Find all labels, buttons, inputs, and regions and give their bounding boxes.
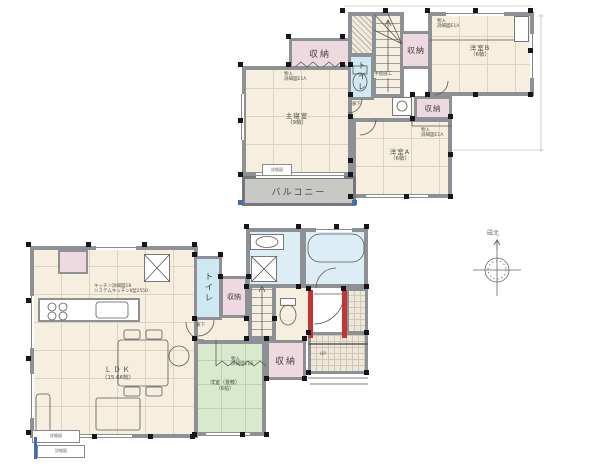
closet-label: 収納 — [309, 47, 331, 60]
refrigerator-space — [144, 254, 170, 282]
hallway-1f-label: 廊下 — [196, 323, 205, 329]
hallway-2f-label: 廊下 — [352, 102, 361, 108]
column-mark — [192, 252, 197, 257]
room-ldk — [30, 246, 198, 438]
column-mark — [410, 92, 415, 97]
column-mark — [244, 336, 249, 341]
column-mark — [286, 34, 291, 39]
column-mark — [364, 224, 369, 229]
balcony-label: バルコニー — [272, 185, 327, 198]
column-mark — [364, 284, 369, 289]
master-window-callout: 詳細図 — [262, 164, 292, 176]
column-mark — [425, 8, 430, 13]
column-mark — [302, 336, 307, 341]
column-mark — [148, 434, 153, 439]
column-mark — [528, 8, 533, 13]
washing-machine — [251, 256, 277, 282]
column-mark — [286, 62, 291, 67]
column-mark — [348, 92, 353, 97]
western-a-storage-note: 物入 詳細図E1A — [421, 128, 443, 139]
western-b-label: 洋室B （6帖） — [448, 44, 512, 59]
handrail-note: 手摺施工 — [374, 72, 392, 78]
closet-label: 収納 — [407, 45, 425, 56]
column-mark — [238, 172, 243, 177]
western-b-corner-cabinet — [514, 16, 529, 42]
column-mark — [244, 284, 249, 289]
genkan-tile — [308, 332, 368, 374]
blue-mark — [34, 437, 37, 459]
kitchen-counter — [38, 298, 140, 322]
closet-2f-3: 収納 — [414, 96, 452, 120]
column-mark — [192, 242, 197, 247]
room-size: （9帖） — [267, 120, 327, 127]
column-mark — [306, 330, 311, 335]
toilet-label: トイレ — [355, 61, 367, 93]
tatami-storage-note: 物入 詳細図E1B — [231, 357, 253, 368]
column-mark — [340, 62, 345, 67]
column-mark — [218, 274, 223, 279]
kitchen-pantry — [58, 250, 88, 274]
closet-label: 収納 — [275, 354, 297, 367]
column-mark — [340, 8, 345, 13]
column-mark — [296, 224, 301, 229]
compass-icon — [473, 240, 521, 296]
closet-label: 収納 — [425, 103, 442, 114]
closet-label: 収納 — [227, 292, 241, 302]
column-mark — [264, 376, 269, 381]
column-mark — [192, 336, 197, 341]
new-wall-right — [342, 290, 347, 338]
column-mark — [26, 430, 31, 435]
column-mark — [448, 114, 453, 119]
column-mark — [92, 434, 97, 439]
column-mark — [306, 370, 311, 375]
closet-1f-a: 収納 — [220, 276, 248, 318]
column-mark — [348, 158, 353, 163]
column-mark — [264, 336, 269, 341]
column-mark — [528, 92, 533, 97]
tatami-label: 洋室（畳敷） （6帖） — [200, 380, 250, 393]
column-mark — [142, 242, 147, 247]
column-mark — [26, 298, 31, 303]
toilet-label: トイレ — [202, 272, 214, 304]
column-mark — [334, 224, 339, 229]
column-mark — [238, 62, 243, 67]
window-callout-1: 詳細図 — [32, 430, 80, 443]
column-mark — [473, 92, 478, 97]
entry-toilet-tank — [280, 298, 296, 306]
column-mark — [410, 116, 415, 121]
up-label: UP — [320, 352, 326, 358]
column-mark — [425, 92, 430, 97]
column-mark — [192, 432, 197, 437]
column-mark — [238, 118, 243, 123]
column-mark — [383, 8, 388, 13]
column-mark — [528, 48, 533, 53]
column-mark — [448, 194, 453, 199]
western-b-storage-note: 物入 詳細図E1A — [437, 19, 459, 30]
column-mark — [86, 242, 91, 247]
column-mark — [341, 286, 346, 291]
column-mark — [448, 152, 453, 157]
column-mark — [26, 356, 31, 361]
column-mark — [348, 114, 353, 119]
column-mark — [364, 330, 369, 335]
bathroom — [302, 228, 368, 288]
closet-1f-b: 収納 — [266, 340, 306, 380]
column-mark — [26, 242, 31, 247]
column-mark — [473, 8, 478, 13]
column-mark — [244, 224, 249, 229]
column-mark — [218, 252, 223, 257]
column-mark — [244, 316, 249, 321]
column-mark — [348, 62, 353, 67]
kitchen-note: キッチン詳細図1B システムキッチンⅡ型2550 — [94, 284, 148, 295]
ldk-label: ＬＤＫ （15.66帖） — [88, 366, 148, 382]
compass-label: 磁北 — [487, 230, 499, 238]
vanity — [250, 234, 284, 250]
balcony: バルコニー — [242, 176, 356, 206]
column-mark — [296, 284, 301, 289]
column-mark — [240, 432, 245, 437]
genkan-upper-tile — [346, 288, 368, 334]
toilet-1f: トイレ — [194, 256, 222, 320]
column-mark — [192, 316, 197, 321]
column-mark — [348, 172, 353, 177]
master-storage-note: 物入 詳細図E1A — [284, 72, 306, 83]
column-mark — [340, 34, 345, 39]
window-callout-2: 詳細図 — [37, 445, 85, 458]
column-mark — [364, 370, 369, 375]
balcony-corner-mark — [352, 200, 357, 205]
column-mark — [246, 274, 251, 279]
balcony-corner-mark — [238, 200, 243, 205]
room-name: 主寝室 — [267, 112, 327, 120]
western-a-label: 洋室A （6帖） — [368, 148, 432, 163]
column-mark — [306, 286, 311, 291]
floor-plan: 主寝室 （9帖） 物入 詳細図E1A 詳細図 収納 トイレ 手摺施工 収納 洋室… — [0, 0, 600, 476]
column-mark — [272, 316, 277, 321]
column-mark — [302, 376, 307, 381]
column-mark — [348, 194, 353, 199]
column-mark — [264, 432, 269, 437]
column-mark — [404, 194, 409, 199]
master-bedroom-label: 主寝室 （9帖） — [267, 112, 327, 127]
washbasin-2f — [392, 97, 412, 116]
